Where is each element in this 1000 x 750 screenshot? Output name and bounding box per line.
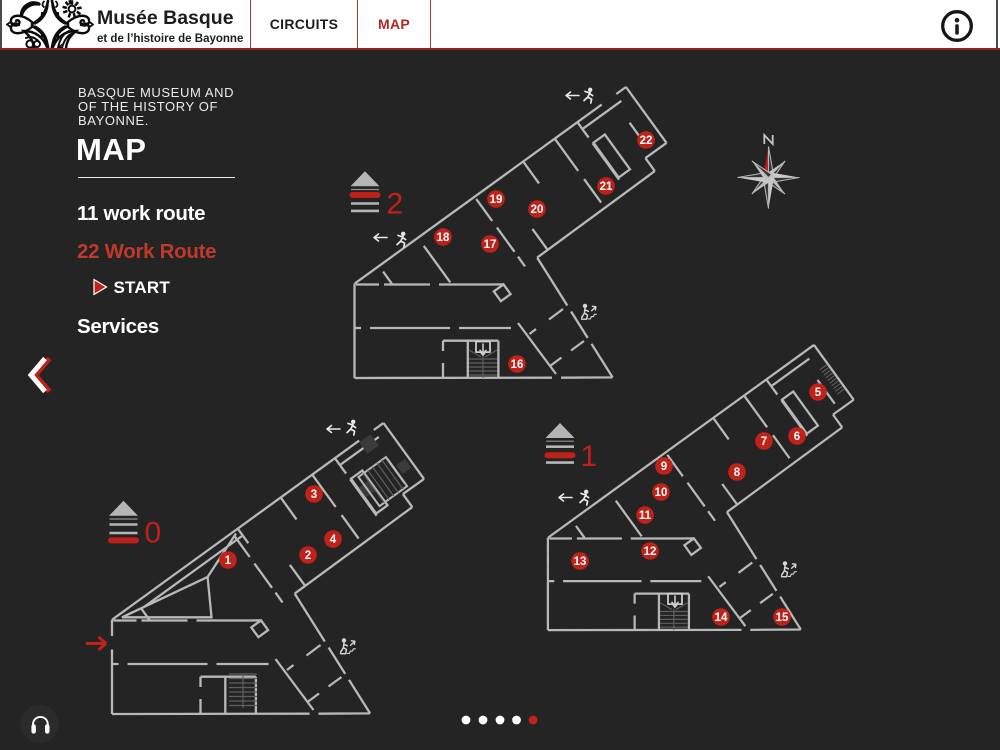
svg-text:9: 9 [661,461,667,473]
svg-text:19: 19 [490,194,503,206]
svg-text:4: 4 [330,534,337,546]
svg-text:16: 16 [511,359,524,371]
svg-text:10: 10 [655,487,668,499]
svg-text:6: 6 [794,431,800,443]
svg-text:13: 13 [574,556,587,568]
svg-text:2: 2 [305,550,311,562]
svg-text:18: 18 [437,232,450,244]
svg-text:15: 15 [776,612,789,624]
svg-text:START: START [114,278,171,297]
svg-text:14: 14 [715,612,728,624]
svg-text:1: 1 [225,555,232,567]
svg-text:11: 11 [639,510,652,522]
svg-text:8: 8 [734,467,741,479]
svg-text:7: 7 [761,436,767,448]
svg-text:0: 0 [145,517,162,550]
svg-text:5: 5 [815,387,822,399]
svg-text:22: 22 [640,135,653,147]
svg-text:12: 12 [644,546,657,558]
svg-text:3: 3 [311,489,317,501]
svg-text:1: 1 [581,440,598,473]
svg-text:21: 21 [600,181,613,193]
svg-text:20: 20 [531,204,544,216]
svg-text:17: 17 [484,239,497,251]
svg-text:2: 2 [387,188,404,221]
